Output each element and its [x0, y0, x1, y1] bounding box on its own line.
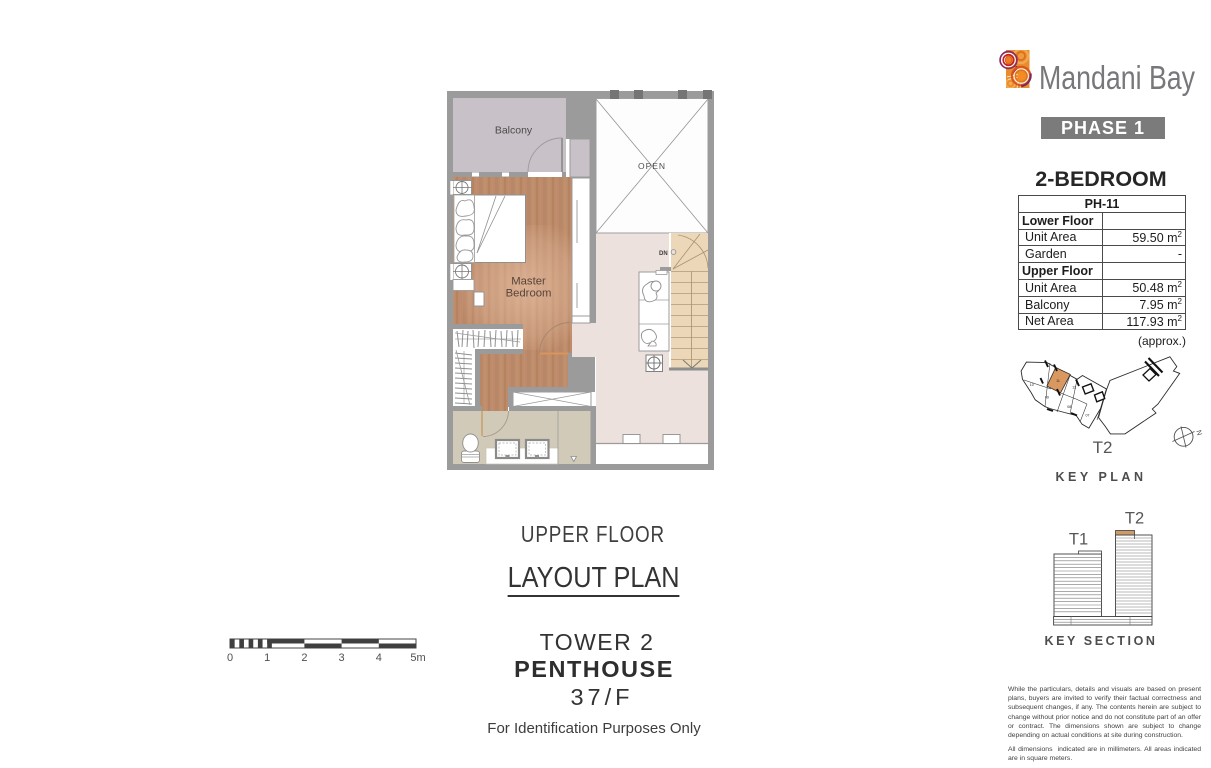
svg-text:5m: 5m	[410, 652, 425, 664]
svg-text:3: 3	[339, 652, 345, 664]
svg-text:T2: T2	[1125, 510, 1144, 528]
svg-text:07: 07	[1086, 414, 1090, 418]
svg-text:Master: Master	[511, 275, 546, 287]
svg-text:1: 1	[264, 652, 270, 664]
svg-text:11: 11	[1056, 379, 1060, 383]
svg-text:DN: DN	[659, 251, 668, 257]
svg-text:09: 09	[1045, 396, 1049, 400]
svg-text:Balcony: Balcony	[495, 125, 533, 137]
svg-text:Bedroom: Bedroom	[506, 287, 552, 299]
svg-text:OPEN: OPEN	[638, 161, 666, 171]
svg-text:2: 2	[301, 652, 307, 664]
svg-text:Mandani Bay: Mandani Bay	[1039, 60, 1195, 97]
svg-text:T1: T1	[1069, 531, 1088, 549]
svg-text:N: N	[1194, 430, 1202, 437]
svg-text:10: 10	[1030, 383, 1034, 387]
svg-text:4: 4	[376, 652, 382, 664]
svg-text:08: 08	[1067, 405, 1071, 409]
svg-text:0: 0	[227, 652, 233, 664]
svg-text:12: 12	[1072, 386, 1076, 390]
svg-text:T2: T2	[1093, 438, 1113, 457]
